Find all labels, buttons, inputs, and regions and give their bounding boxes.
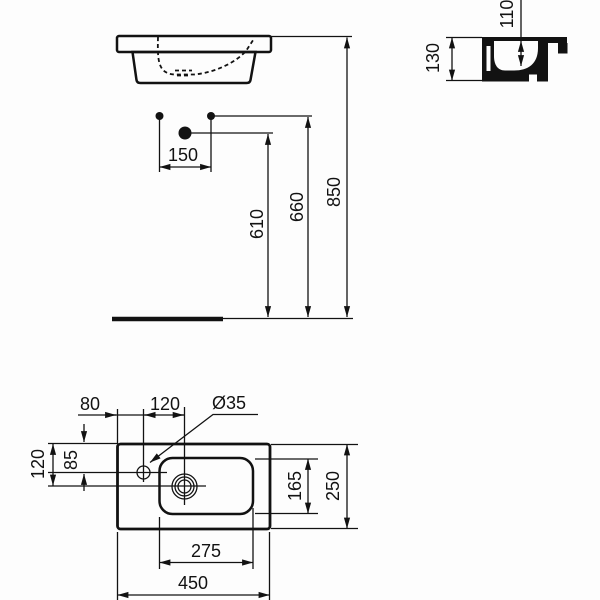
technical-drawing-canvas: 150 610 660 850 130 110 [0, 0, 600, 600]
tap-diameter-leader-line [150, 415, 258, 463]
dim-label-hole-spacing: 150 [168, 145, 198, 165]
front-elevation-view [117, 36, 352, 83]
wall-hook-lip [558, 43, 568, 54]
dim-label-rim-height: 850 [324, 177, 344, 207]
basin-body-front [133, 52, 256, 83]
dim-label-tap-from-back: 85 [61, 450, 81, 470]
dim-label-bowl-depth: 165 [285, 471, 305, 501]
washbasin-drawing: 150 610 660 850 130 110 [0, 0, 600, 600]
side-section-notch [529, 75, 537, 83]
dim-label-inner-depth: 110 [497, 0, 517, 28]
wall-hook-top [548, 37, 567, 43]
dim-label-fixing-height: 660 [287, 192, 307, 222]
dim-label-tap-to-drain: 120 [150, 394, 180, 414]
trap-outlet-dot [179, 127, 192, 140]
dim-label-overall-depth: 250 [323, 471, 343, 501]
dim-label-drain-from-back: 120 [28, 449, 48, 479]
dim-label-tap-from-left: 80 [80, 394, 100, 414]
drain-hidden-outline [175, 71, 192, 76]
bowl-hidden-outline [158, 37, 255, 75]
dim-label-trap-height: 610 [247, 209, 267, 239]
elevation-dimensions: 150 610 660 850 [112, 38, 353, 320]
dim-label-overall-width: 450 [178, 573, 208, 593]
plan-view: 80 120 Ø35 120 85 165 250 275 450 [28, 393, 358, 600]
dim-label-tap-diameter: Ø35 [212, 393, 246, 413]
right-fixing-hole-dot [207, 112, 215, 120]
side-section-slot [487, 46, 491, 71]
left-fixing-hole-dot [156, 112, 164, 120]
dim-label-basin-height: 130 [423, 43, 443, 73]
side-section-view: 130 110 [423, 0, 568, 82]
dim-label-bowl-width: 275 [191, 541, 221, 561]
